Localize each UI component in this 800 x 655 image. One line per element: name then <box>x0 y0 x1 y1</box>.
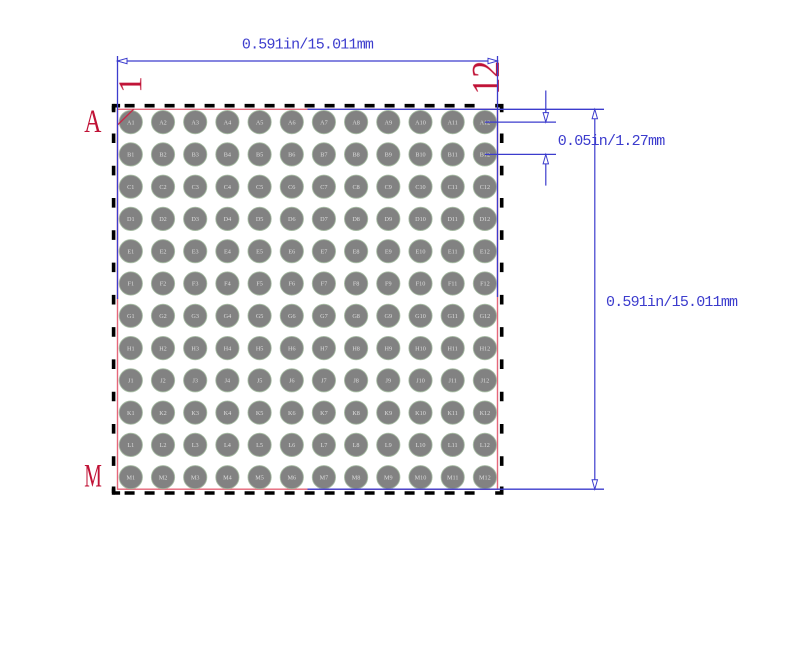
svg-text:B5: B5 <box>256 152 263 159</box>
svg-text:M6: M6 <box>287 474 296 481</box>
svg-text:J6: J6 <box>289 378 295 385</box>
svg-text:B9: B9 <box>385 152 392 159</box>
svg-text:B1: B1 <box>127 152 134 159</box>
svg-text:K7: K7 <box>320 410 328 417</box>
svg-text:E6: E6 <box>288 248 295 255</box>
svg-text:H2: H2 <box>159 345 167 352</box>
svg-text:M4: M4 <box>223 474 232 481</box>
svg-text:L6: L6 <box>288 442 295 449</box>
svg-text:C5: C5 <box>256 184 263 191</box>
svg-text:L7: L7 <box>320 442 327 449</box>
svg-text:0.591in/15.011mm: 0.591in/15.011mm <box>242 37 374 54</box>
svg-text:M9: M9 <box>384 474 393 481</box>
svg-text:E2: E2 <box>160 248 167 255</box>
svg-text:E1: E1 <box>127 248 134 255</box>
svg-text:F2: F2 <box>160 281 167 288</box>
svg-text:M12: M12 <box>479 474 491 481</box>
svg-text:J10: J10 <box>416 378 425 385</box>
svg-text:E10: E10 <box>416 248 426 255</box>
svg-text:M: M <box>84 457 102 493</box>
svg-text:M3: M3 <box>191 474 200 481</box>
svg-text:A7: A7 <box>320 119 328 126</box>
svg-text:K5: K5 <box>256 410 264 417</box>
svg-text:B7: B7 <box>320 152 327 159</box>
svg-text:C1: C1 <box>127 184 134 191</box>
svg-text:G9: G9 <box>385 313 393 320</box>
svg-text:K9: K9 <box>385 410 393 417</box>
svg-text:G5: G5 <box>256 313 264 320</box>
svg-text:G6: G6 <box>288 313 296 320</box>
svg-text:J5: J5 <box>257 378 263 385</box>
svg-text:0.05in/1.27mm: 0.05in/1.27mm <box>558 133 665 150</box>
svg-text:M5: M5 <box>255 474 264 481</box>
svg-text:J12: J12 <box>481 378 490 385</box>
svg-text:A6: A6 <box>288 119 296 126</box>
svg-text:A3: A3 <box>191 119 199 126</box>
svg-text:F5: F5 <box>256 281 263 288</box>
svg-text:L1: L1 <box>127 442 134 449</box>
svg-text:L11: L11 <box>448 442 458 449</box>
svg-text:A4: A4 <box>224 119 232 126</box>
svg-text:J1: J1 <box>128 378 134 385</box>
svg-text:G4: G4 <box>224 313 232 320</box>
svg-text:F1: F1 <box>128 281 135 288</box>
svg-text:B8: B8 <box>352 152 359 159</box>
svg-text:J2: J2 <box>160 378 166 385</box>
svg-text:B12: B12 <box>480 152 490 159</box>
svg-text:C10: C10 <box>415 184 425 191</box>
svg-text:H6: H6 <box>288 345 296 352</box>
svg-text:C8: C8 <box>352 184 359 191</box>
svg-text:A8: A8 <box>352 119 360 126</box>
svg-text:D1: D1 <box>127 216 135 223</box>
svg-text:J7: J7 <box>321 378 327 385</box>
svg-text:B10: B10 <box>415 152 425 159</box>
svg-text:L12: L12 <box>480 442 490 449</box>
svg-text:G12: G12 <box>480 313 491 320</box>
svg-text:K1: K1 <box>127 410 135 417</box>
svg-text:H7: H7 <box>320 345 328 352</box>
svg-text:J8: J8 <box>353 378 359 385</box>
svg-text:H5: H5 <box>256 345 264 352</box>
svg-text:F4: F4 <box>224 281 231 288</box>
svg-text:C11: C11 <box>448 184 458 191</box>
svg-text:G10: G10 <box>415 313 426 320</box>
svg-text:D7: D7 <box>320 216 328 223</box>
svg-text:D2: D2 <box>159 216 167 223</box>
svg-text:L8: L8 <box>353 442 360 449</box>
svg-text:G7: G7 <box>320 313 328 320</box>
svg-text:D4: D4 <box>224 216 232 223</box>
svg-text:D11: D11 <box>447 216 457 223</box>
svg-text:H11: H11 <box>447 345 457 352</box>
svg-text:F12: F12 <box>480 281 490 288</box>
svg-text:K8: K8 <box>352 410 360 417</box>
svg-text:F8: F8 <box>353 281 360 288</box>
svg-text:H8: H8 <box>352 345 360 352</box>
svg-text:L2: L2 <box>160 442 167 449</box>
svg-text:H1: H1 <box>127 345 135 352</box>
svg-text:C3: C3 <box>192 184 199 191</box>
svg-text:F9: F9 <box>385 281 392 288</box>
svg-text:G11: G11 <box>447 313 457 320</box>
svg-text:12: 12 <box>463 61 507 95</box>
svg-text:A: A <box>84 103 101 140</box>
svg-text:C6: C6 <box>288 184 295 191</box>
svg-text:B11: B11 <box>448 152 458 159</box>
svg-text:G3: G3 <box>191 313 199 320</box>
svg-text:K4: K4 <box>224 410 232 417</box>
svg-text:H3: H3 <box>191 345 199 352</box>
svg-text:E3: E3 <box>192 248 199 255</box>
svg-text:B4: B4 <box>224 152 231 159</box>
svg-text:B3: B3 <box>192 152 199 159</box>
svg-text:A11: A11 <box>447 119 457 126</box>
svg-text:E8: E8 <box>353 248 360 255</box>
svg-text:M8: M8 <box>352 474 361 481</box>
svg-text:A2: A2 <box>159 119 167 126</box>
svg-text:0.591in/15.011mm: 0.591in/15.011mm <box>606 294 738 311</box>
svg-text:L9: L9 <box>385 442 392 449</box>
svg-text:L3: L3 <box>192 442 199 449</box>
svg-text:A5: A5 <box>256 119 264 126</box>
svg-text:D3: D3 <box>191 216 199 223</box>
svg-text:M1: M1 <box>126 474 135 481</box>
svg-text:K3: K3 <box>191 410 199 417</box>
svg-text:C12: C12 <box>480 184 490 191</box>
svg-text:E11: E11 <box>448 248 458 255</box>
svg-text:D5: D5 <box>256 216 264 223</box>
svg-text:E7: E7 <box>320 248 327 255</box>
svg-text:B2: B2 <box>159 152 166 159</box>
svg-text:J11: J11 <box>449 378 457 385</box>
svg-text:F7: F7 <box>321 281 328 288</box>
svg-text:M7: M7 <box>320 474 329 481</box>
svg-text:E9: E9 <box>385 248 392 255</box>
svg-text:H9: H9 <box>385 345 393 352</box>
svg-text:D10: D10 <box>415 216 426 223</box>
svg-text:H10: H10 <box>415 345 426 352</box>
svg-text:J4: J4 <box>225 378 231 385</box>
svg-text:G2: G2 <box>159 313 167 320</box>
svg-text:A1: A1 <box>127 119 135 126</box>
svg-text:B6: B6 <box>288 152 295 159</box>
svg-text:C2: C2 <box>159 184 166 191</box>
svg-text:G8: G8 <box>352 313 360 320</box>
svg-text:E4: E4 <box>224 248 231 255</box>
svg-text:F11: F11 <box>448 281 457 288</box>
svg-text:K2: K2 <box>159 410 167 417</box>
svg-text:J3: J3 <box>192 378 198 385</box>
svg-text:H12: H12 <box>480 345 491 352</box>
svg-text:C7: C7 <box>320 184 327 191</box>
svg-text:M11: M11 <box>447 474 458 481</box>
svg-text:D9: D9 <box>385 216 393 223</box>
svg-text:D12: D12 <box>480 216 491 223</box>
svg-text:F10: F10 <box>416 281 426 288</box>
svg-text:H4: H4 <box>224 345 232 352</box>
svg-text:A9: A9 <box>385 119 393 126</box>
svg-text:M2: M2 <box>159 474 168 481</box>
svg-text:C9: C9 <box>385 184 392 191</box>
svg-text:C4: C4 <box>224 184 231 191</box>
svg-text:L10: L10 <box>416 442 426 449</box>
svg-text:D8: D8 <box>352 216 360 223</box>
svg-text:E12: E12 <box>480 248 490 255</box>
svg-text:K6: K6 <box>288 410 296 417</box>
svg-text:E5: E5 <box>256 248 263 255</box>
svg-text:L4: L4 <box>224 442 231 449</box>
svg-text:F6: F6 <box>289 281 296 288</box>
svg-text:K11: K11 <box>447 410 457 417</box>
svg-text:M10: M10 <box>415 474 427 481</box>
svg-text:K12: K12 <box>480 410 491 417</box>
svg-text:L5: L5 <box>256 442 263 449</box>
svg-text:D6: D6 <box>288 216 296 223</box>
svg-text:F3: F3 <box>192 281 199 288</box>
svg-text:J9: J9 <box>386 378 392 385</box>
svg-text:G1: G1 <box>127 313 135 320</box>
svg-text:A10: A10 <box>415 119 426 126</box>
svg-text:A12: A12 <box>480 119 491 126</box>
svg-text:K10: K10 <box>415 410 426 417</box>
